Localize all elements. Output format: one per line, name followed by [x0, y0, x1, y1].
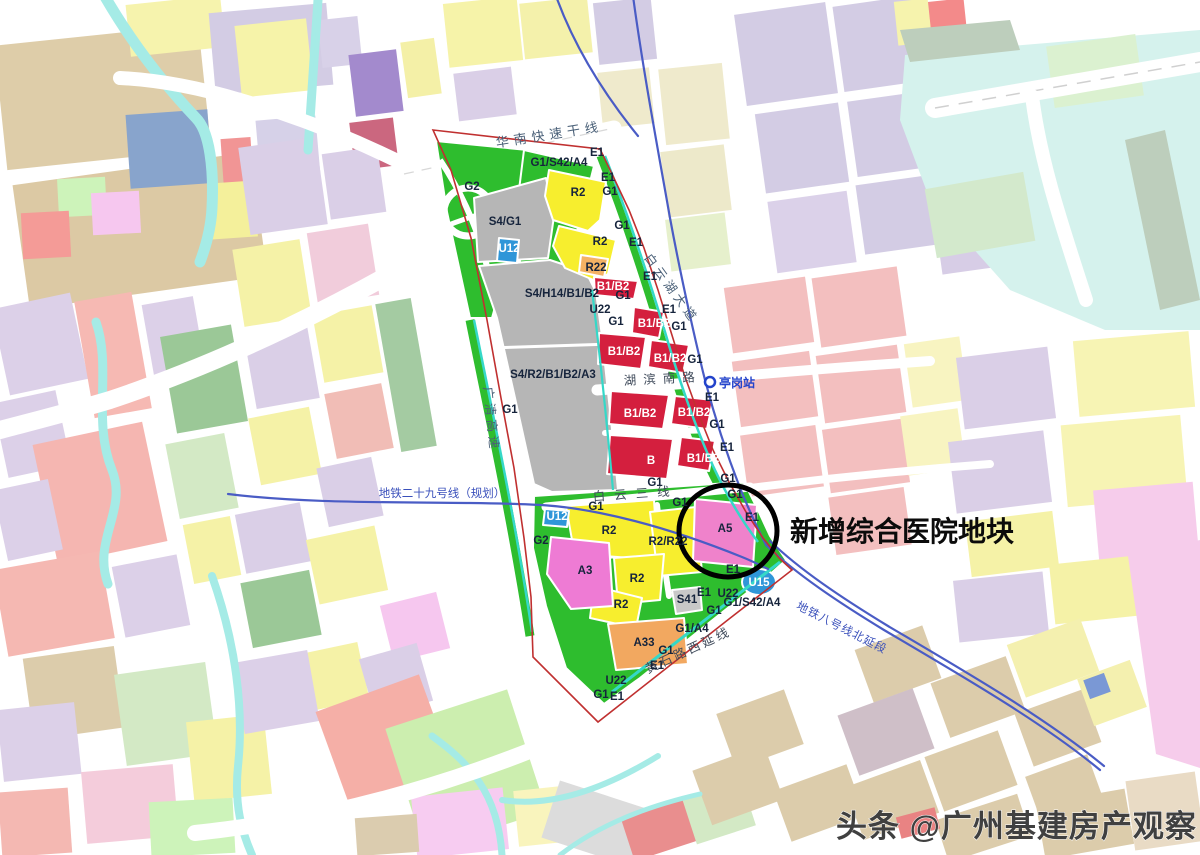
parcel-label: E1	[705, 392, 720, 404]
parcel-label: E1	[590, 147, 605, 159]
parcel-label: E1	[650, 660, 665, 672]
parcel-label: R2	[593, 236, 608, 248]
parcel-label: G2	[533, 535, 548, 547]
parcel-label: E1	[720, 442, 735, 454]
parcel-label: S4/G1	[489, 216, 522, 228]
parcel-label: R2	[602, 525, 617, 537]
parcel-label: B1/B2	[608, 346, 641, 358]
parcel-label: E1	[726, 564, 741, 576]
parcel-label: G1	[593, 689, 609, 701]
parcel-label: G1	[647, 477, 663, 489]
parcel-label: U22	[589, 304, 610, 316]
parcel-label: G2	[464, 181, 479, 193]
parcel-label: A3	[578, 565, 593, 577]
station-label-tinggang: 亭岗站	[719, 375, 755, 390]
parcel-label: A5	[718, 523, 733, 535]
parcel-b	[607, 435, 673, 479]
parcel-label: G1	[602, 186, 618, 198]
metro-line-29-label: 地铁二十九号线（规划）	[379, 486, 506, 500]
road-label-guangqing-expressway: 广清高速	[481, 386, 503, 453]
parcel-label: R2	[630, 573, 645, 585]
parcel-label: G1	[658, 645, 674, 657]
parcel-label: G1	[615, 290, 631, 302]
parcel-label: G1/S42/A4	[531, 157, 588, 169]
parcel-label: G1	[588, 501, 604, 513]
parcel-label: R2/R22	[649, 536, 688, 548]
parcel-label: E1	[697, 587, 712, 599]
parcel-label: U22	[605, 675, 626, 687]
zoning-map: 华南快速干线广清高速白云湖大道湖滨南路白云三线黄石路西延线地铁二十九号线（规划）…	[0, 0, 1200, 855]
parcel-label: B1/B2	[687, 453, 720, 465]
parcel-label: S4/H14/B1/B2	[525, 288, 599, 300]
parcel-label: B1/B2	[624, 408, 657, 420]
parcel-label: G1/A4	[675, 623, 709, 635]
parcel-label: G1	[614, 220, 630, 232]
parcel-label: G1	[709, 419, 725, 431]
parcel-label: A33	[633, 637, 654, 649]
watermark-text: 头条 @广州基建房产观察	[836, 809, 1197, 844]
station-marker-tinggang	[705, 377, 715, 387]
parcel-label: B1/B2	[678, 407, 711, 419]
parcel-label: G1	[720, 473, 736, 485]
parcel-label: G1	[672, 497, 688, 509]
parcel-label: U12	[546, 511, 567, 523]
parcel-label: R22	[585, 262, 606, 274]
parcel-label: R2	[571, 187, 586, 199]
parcel-label: G1/S42/A4	[724, 597, 781, 609]
parcel-label: G1	[706, 605, 722, 617]
annotation-text: 新增综合医院地块	[790, 515, 1014, 547]
parcel-label: E1	[629, 237, 644, 249]
parcel-label: E1	[662, 304, 677, 316]
metro-line-8-label: 地铁八号线北延段	[794, 598, 889, 656]
parcel-label: E1	[745, 512, 760, 524]
parcel-label: G1	[671, 321, 687, 333]
parcel-label: G1	[502, 404, 518, 416]
parcel-label: U12	[498, 243, 519, 255]
parcel-label: B1/B2	[654, 353, 687, 365]
parcel-label: G1	[727, 489, 743, 501]
parcel-label: E1	[643, 271, 658, 283]
parcel-label: S41	[677, 594, 698, 606]
parcel-label: S4/R2/B1/B2/A3	[510, 369, 596, 381]
parcel-label: B1/B2	[638, 318, 671, 330]
parcel-label: E1	[610, 691, 625, 703]
parcel-label: G1	[687, 354, 703, 366]
parcel-label: E1	[601, 172, 616, 184]
parcel-label: G1	[608, 316, 624, 328]
parcel-label: B	[647, 455, 655, 467]
parcel-label: U15	[748, 577, 770, 589]
parcel-label: R2	[614, 599, 629, 611]
